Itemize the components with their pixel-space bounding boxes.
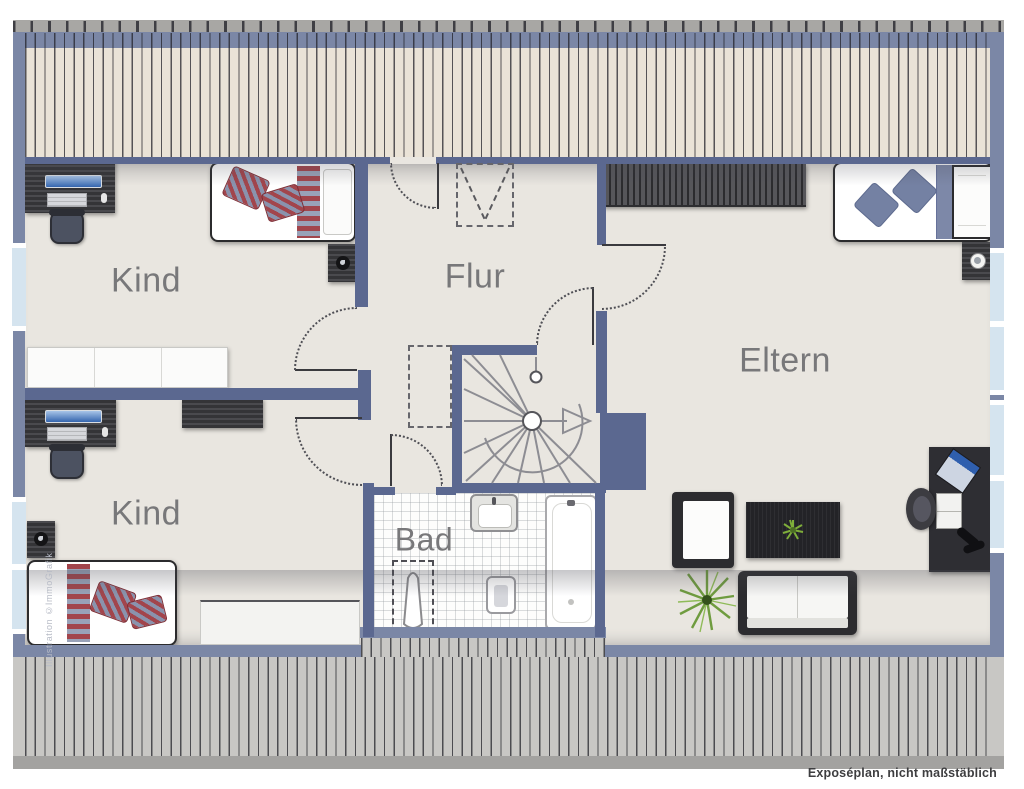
window-mullion <box>990 475 1004 481</box>
shaft-dashed-outline <box>408 345 452 428</box>
illustration-credit: Illustration ©ImmoGrafik <box>44 497 54 667</box>
window-left-1 <box>12 243 26 331</box>
door-leaf <box>437 163 439 209</box>
divider <box>94 348 95 387</box>
room-label-flur: Flur <box>445 258 506 297</box>
spiral-staircase <box>452 345 646 493</box>
mouse-icon <box>102 427 108 437</box>
lamp-highlight <box>38 536 43 541</box>
bad-wall-left <box>363 483 374 637</box>
bad-wall-right <box>595 490 605 637</box>
wall-flur-eltern-top <box>597 163 606 245</box>
wall-between-kind-rooms <box>25 388 366 400</box>
lamp-shadow <box>974 257 981 264</box>
table-plant-icon <box>781 518 805 542</box>
room-label-eltern: Eltern <box>739 342 831 381</box>
room-label-kind-top: Kind <box>111 262 181 301</box>
sink <box>470 494 518 532</box>
window-right-1 <box>990 248 1004 395</box>
exterior-wall-bottom-bad <box>360 627 606 638</box>
keyboard-icon <box>47 427 87 441</box>
lamp-highlight <box>340 260 345 265</box>
desk <box>929 447 994 572</box>
wall-kind-flur <box>355 163 368 307</box>
bad-wall-top-a <box>363 487 395 495</box>
roof-hatch-bottom <box>25 657 990 756</box>
tub-faucet-icon <box>567 500 575 506</box>
office-chair <box>50 446 84 479</box>
laptop-icon <box>935 448 981 494</box>
roof-window-v-icon <box>458 165 512 225</box>
roof-window-dashed <box>456 163 514 227</box>
wall-sideboard <box>27 347 228 388</box>
exterior-wall-bottom-left <box>13 645 361 657</box>
desk <box>25 398 116 447</box>
pillow-fold <box>958 225 986 226</box>
desk-chair <box>906 488 936 530</box>
window-mullion <box>990 321 1004 327</box>
plan-caption: Exposéplan, nicht maßstäblich <box>808 766 997 780</box>
window-mullion <box>12 564 26 570</box>
window-left-2 <box>12 497 26 634</box>
floorplan-canvas: Kind Flur Kind Bad Eltern Illustration ©… <box>0 0 1024 789</box>
monitor-icon <box>45 410 102 423</box>
office-chair <box>50 211 84 244</box>
room-label-kind-bottom: Kind <box>111 495 181 534</box>
divider <box>161 348 162 387</box>
basin <box>478 504 512 528</box>
exterior-wall-bottom-right <box>605 645 1004 657</box>
chair-back <box>49 444 85 451</box>
book-spine <box>937 511 961 512</box>
armchair <box>672 492 734 568</box>
room-label-bad: Bad <box>395 522 453 559</box>
nightstand <box>328 244 357 282</box>
roof-hatch-top <box>25 33 990 157</box>
coffee-table <box>746 502 840 558</box>
chair-seat <box>913 496 931 522</box>
tv-lowboard <box>182 398 263 428</box>
seat-cushion <box>683 501 729 559</box>
faucet-icon <box>492 497 496 505</box>
roof-ridge-ticks <box>13 21 1004 32</box>
window-right-2 <box>990 400 1004 553</box>
open-book <box>936 493 962 529</box>
